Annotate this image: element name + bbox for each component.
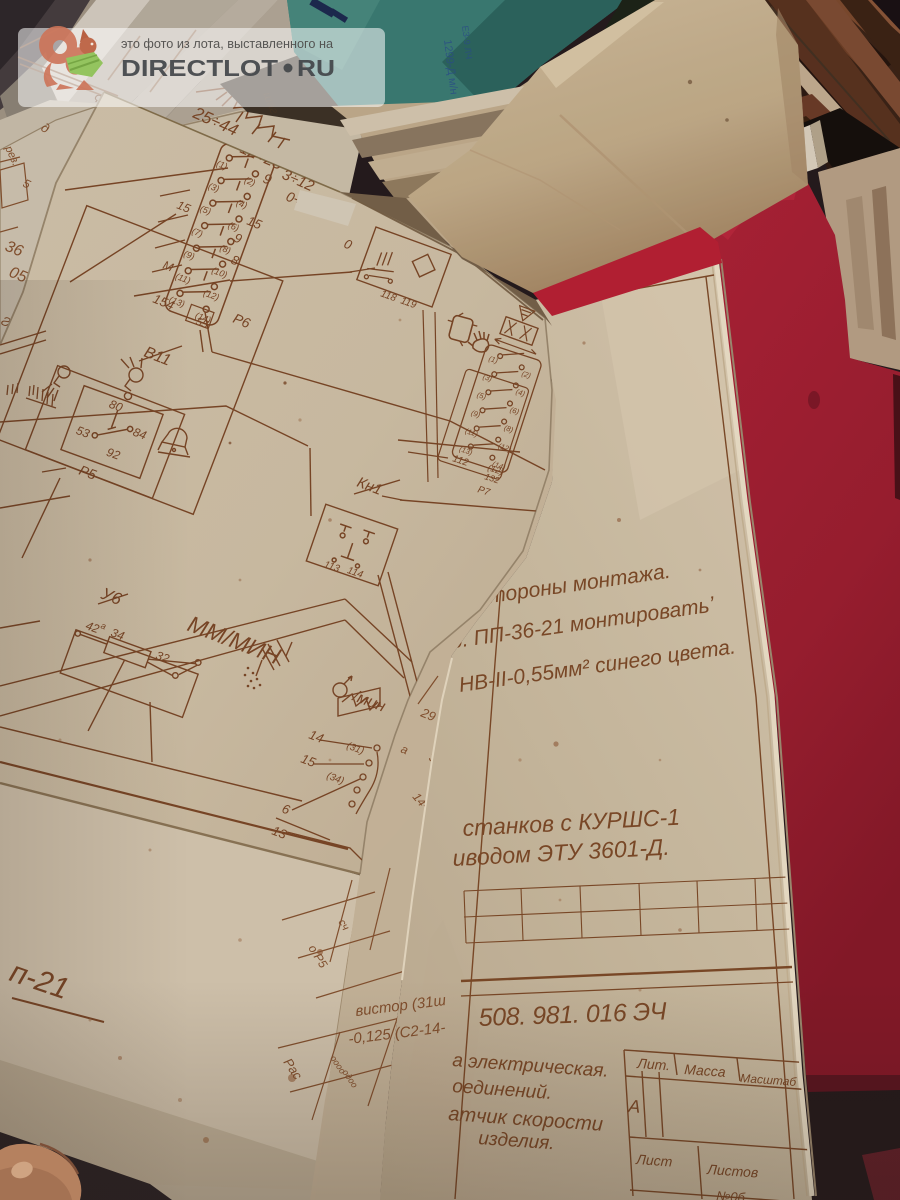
svg-text:это фото из лота, выставленног: это фото из лота, выставленного на	[121, 37, 334, 51]
svg-text:DIRECTLOT: DIRECTLOT	[121, 55, 278, 81]
svg-text:RU: RU	[297, 55, 335, 81]
